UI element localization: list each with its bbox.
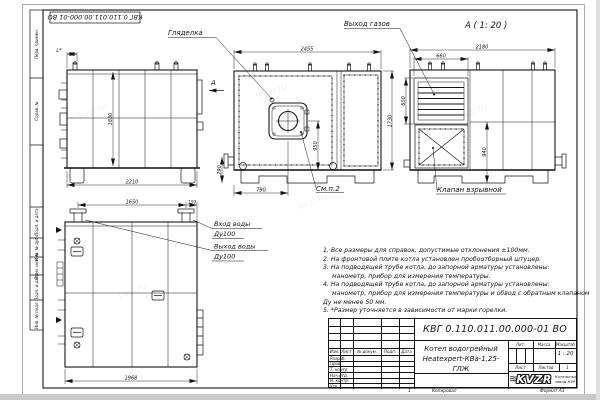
page-edge <box>0 394 600 400</box>
tb-doc-number: КВГ 0.110.011.00.000-01 ВО <box>414 319 576 340</box>
note-line: 4. На подводящей трубе котла, до запорно… <box>323 281 585 290</box>
margin-label: Подп. и дата <box>34 208 39 236</box>
tb-scale-label: Масштаб <box>555 342 576 347</box>
tb-product-name: Котел водогрейный Heatexpert-КВа-1,25-ГЛ… <box>415 344 507 374</box>
tb-product-name-line2: Heatexpert-КВа-1,25-ГЛЖ <box>415 354 507 374</box>
tb-lit-label: Лит. <box>508 342 533 347</box>
dim-660: 660 <box>436 54 446 60</box>
margin-label: Подп. и дата <box>34 273 39 301</box>
dim-159: 159 <box>188 200 197 206</box>
dim-1730: 1730 <box>388 115 394 128</box>
tb-scale-value: 1 : 20 <box>555 351 576 357</box>
drawing-sheet: kvzr.ru kvzr.ru kvzr.ru kvzr.ru kvzr.ru … <box>0 0 600 400</box>
dim-2180: 2180 <box>476 45 489 51</box>
tb-row-tkontr: Т. контр. <box>330 367 349 372</box>
rear-right-pipe <box>555 154 566 168</box>
tb-mass-label: Масса <box>533 342 555 347</box>
note-line: манометр, прибор для измерения температу… <box>323 290 585 299</box>
tb-row-nkontr: Н. контр. <box>330 378 349 383</box>
dim-290: 290 <box>217 165 223 175</box>
tb-sheets-value: 1 <box>559 365 576 370</box>
side-fittings <box>59 90 67 148</box>
water-out-dn: Ду100 <box>213 253 235 261</box>
view-a-title: А ( 1: 20 ) <box>464 21 507 31</box>
water-pipe-stub <box>70 209 86 222</box>
page-edge <box>596 0 600 400</box>
dim-1830: 1830 <box>108 113 114 126</box>
tb-row-prov: Пров. <box>330 361 342 366</box>
see-item-label: См.п.2 <box>316 185 340 193</box>
dim-L: L* <box>56 48 62 54</box>
margin-label: Инв. № подл. <box>34 301 39 329</box>
tb-col-docnum: № докум. <box>353 349 381 354</box>
water-in-dn: Ду100 <box>213 230 235 238</box>
note-line: 1. Все размеры для справок, допустимые о… <box>323 247 585 256</box>
dim-2210: 2210 <box>126 180 139 186</box>
note-line: 2. На фронтовой плите котла установлен п… <box>323 256 585 265</box>
stamp-rotated-doc-number: КВГ 0.110.011.00.000-01 ВО <box>48 13 143 21</box>
section-mark-A: А <box>210 79 216 87</box>
front-left-pipe <box>224 154 234 168</box>
logo-kvzr: KVZR <box>516 373 551 386</box>
tb-row-razrab: Разраб. <box>330 356 346 361</box>
margin-label: Справ. № <box>34 101 39 120</box>
lifting-lugs <box>73 62 178 70</box>
tb-col-podp: Подп. <box>381 349 399 354</box>
support-leg <box>70 168 84 183</box>
company-name-line2: завод КЗР <box>555 380 577 385</box>
dim-600: 600 <box>401 96 407 106</box>
inspection-plates <box>71 247 164 337</box>
tb-sheet-label: Лист <box>508 365 533 370</box>
view-a: А ( 1: 20 ) <box>344 20 566 194</box>
svg-text:kvzr.ru: kvzr.ru <box>257 81 289 103</box>
tb-row-nachotd: Нач.отд. <box>330 373 348 378</box>
peephole-label: Гляделка <box>168 29 203 37</box>
tb-col-list: Лист <box>340 349 353 354</box>
pipe-marker <box>56 317 62 323</box>
svg-text:kvzr.ru: kvzr.ru <box>117 281 149 303</box>
pipe-marker <box>56 227 62 233</box>
dim-2455: 2455 <box>301 47 314 53</box>
note-line: 3. На подводящей трубе котла, до запорно… <box>323 264 585 273</box>
tb-col-izm: Изм. <box>329 349 340 354</box>
explosion-valve-panel <box>415 125 468 168</box>
lifting-lugs <box>254 63 371 71</box>
support-leg <box>181 168 195 183</box>
dim-790: 790 <box>256 188 266 194</box>
tb-col-data: Дата <box>399 349 414 354</box>
note-line: 5. *Размер уточняется в зависимости от м… <box>323 307 585 316</box>
margin-label: Перв. примен. <box>34 29 39 59</box>
dim-950: 950 <box>313 141 319 151</box>
dim-940: 940 <box>482 147 488 157</box>
note-line: Ду не менее 50 мм. <box>323 299 585 308</box>
explosion-valve-label: Клапан взрывной <box>437 186 502 194</box>
side-view: 1830 2210 L* А <box>56 48 224 188</box>
company-logo: ≋ KVZR Котельный завод КЗР <box>509 372 576 387</box>
dim-1650: 1650 <box>126 200 139 206</box>
burner-plate <box>269 103 309 139</box>
tb-sheets-label: Листов <box>533 365 559 370</box>
water-pipe-stub <box>178 209 194 222</box>
water-out-label: Выход воды <box>214 243 255 251</box>
lifting-lugs <box>429 62 547 70</box>
ladder-strip <box>197 310 203 355</box>
tb-product-name-line1: Котел водогрейный <box>415 344 507 354</box>
water-in-label: Вход воды <box>214 220 250 228</box>
gas-outlet-label: Выход газов <box>344 20 390 28</box>
svg-text:kvzr.ru: kvzr.ru <box>297 191 329 213</box>
notes: 1. Все размеры для справок, допустимые о… <box>323 247 585 316</box>
title-block: Изм. Лист № докум. Подп. Дата Разраб. Пр… <box>328 318 577 388</box>
company-name: Котельный завод КЗР <box>555 375 577 384</box>
plan-view: 1650 159 1968 Вход воды Ду100 Выход воды… <box>56 200 268 385</box>
dim-1968: 1968 <box>125 376 138 382</box>
